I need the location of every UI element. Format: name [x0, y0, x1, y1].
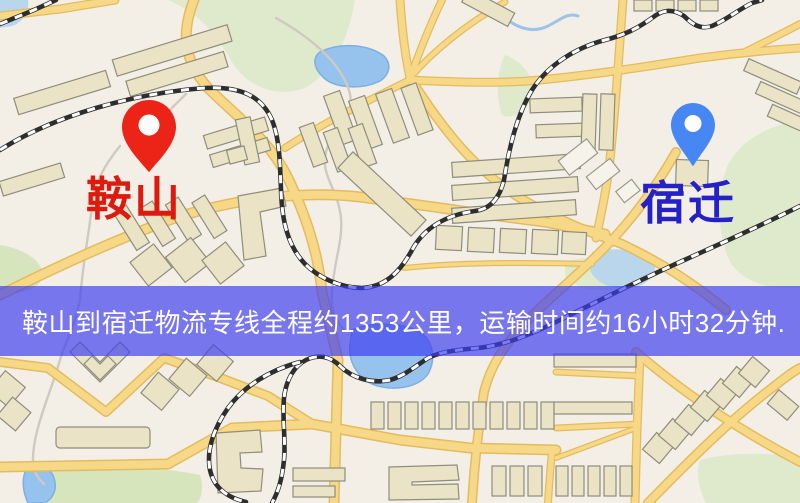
origin-label: 鞍山: [86, 176, 182, 222]
map-image: 鞍山到宿迁物流专线全程约1353公里，运输时间约16小时32分钟. 鞍山 宿迁: [0, 0, 800, 503]
route-info-text: 鞍山到宿迁物流专线全程约1353公里，运输时间约16小时32分钟.: [22, 303, 785, 340]
destination-pin-icon: [669, 101, 717, 174]
destination-label: 宿迁: [640, 180, 736, 226]
origin-pin-icon: [119, 98, 179, 179]
route-info-banner: 鞍山到宿迁物流专线全程约1353公里，运输时间约16小时32分钟.: [0, 286, 800, 356]
map-background: [0, 0, 800, 503]
